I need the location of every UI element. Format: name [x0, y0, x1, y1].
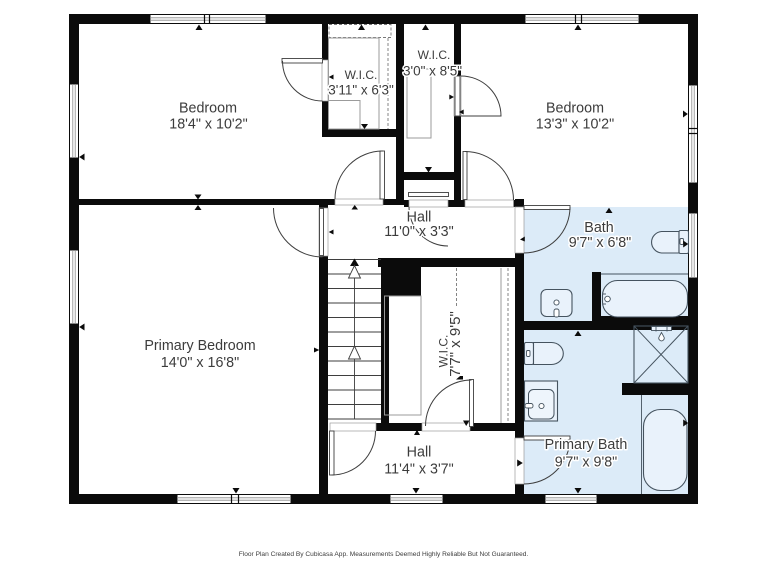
svg-text:Floor Plan Created By Cubicasa: Floor Plan Created By Cubicasa App. Meas…	[239, 551, 529, 558]
svg-text:Bedroom: Bedroom	[546, 100, 604, 116]
svg-text:Primary Bedroom: Primary Bedroom	[144, 338, 255, 354]
svg-text:Bedroom: Bedroom	[179, 100, 237, 116]
svg-text:9'7" x 6'8": 9'7" x 6'8"	[569, 235, 632, 251]
svg-text:Primary Bath: Primary Bath	[545, 437, 628, 453]
svg-text:13'3" x 10'2": 13'3" x 10'2"	[536, 117, 614, 133]
svg-text:W.I.C.: W.I.C.	[345, 68, 378, 82]
svg-text:14'0" x 16'8": 14'0" x 16'8"	[161, 355, 239, 371]
svg-text:7'7" x 9'5": 7'7" x 9'5"	[447, 311, 464, 377]
svg-text:Bath: Bath	[584, 220, 613, 236]
svg-text:W.I.C.: W.I.C.	[418, 48, 451, 62]
svg-text:Hall: Hall	[407, 444, 432, 460]
svg-text:3'0" x 8'5": 3'0" x 8'5"	[403, 64, 462, 79]
svg-text:18'4" x 10'2": 18'4" x 10'2"	[169, 117, 247, 133]
svg-text:3'11" x 6'3": 3'11" x 6'3"	[328, 83, 394, 98]
svg-text:9'7" x 9'8": 9'7" x 9'8"	[555, 454, 618, 470]
svg-text:11'0" x 3'3": 11'0" x 3'3"	[384, 224, 453, 240]
svg-text:11'4" x 3'7": 11'4" x 3'7"	[384, 461, 453, 477]
